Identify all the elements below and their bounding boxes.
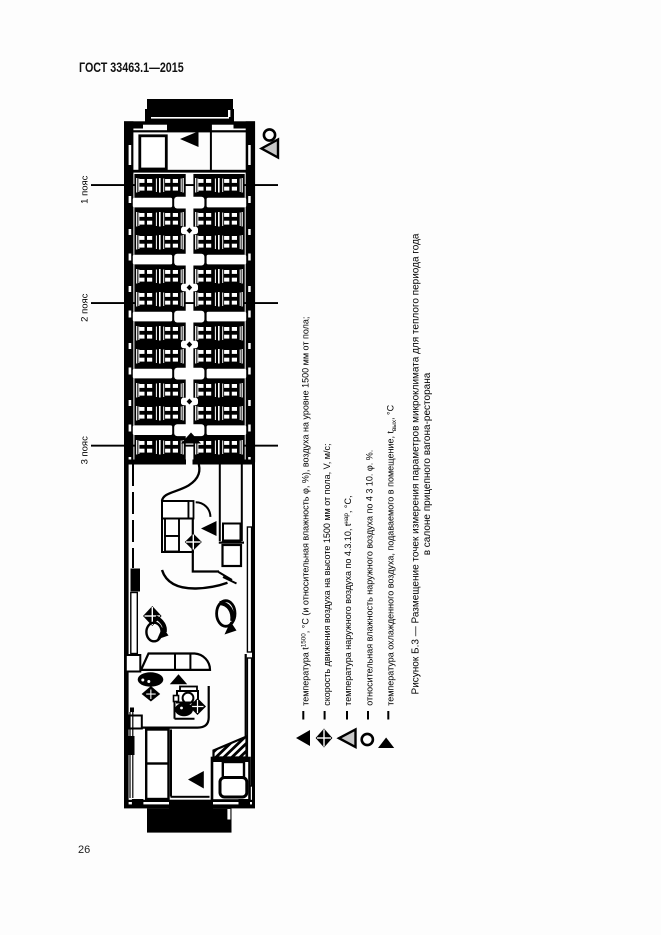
svg-text:2 пояс: 2 пояс [80,293,91,321]
svg-text:температура t1500, °С (и относ: температура t1500, °С (и относительная в… [301,317,311,706]
svg-text:относительная влажность наружн: относительная влажность наружного воздух… [364,450,374,706]
svg-text:1 пояс: 1 пояс [80,175,91,203]
svg-text:3 пояс: 3 пояс [80,436,91,464]
svg-text:температура охлажденного возду: температура охлажденного воздуха, подава… [386,404,399,705]
svg-text:Рисунок Б.3 — Размещение точек: Рисунок Б.3 — Размещение точек измерения… [411,233,422,694]
svg-text:в салоне прицепного вагона-рес: в салоне прицепного вагона-ресторана [422,372,433,555]
svg-text:скорость движения воздуха на в: скорость движения воздуха на высоте 1500… [322,444,332,706]
svg-text:температура наружного воздуха: температура наружного воздуха по 4.3.10,… [343,496,353,706]
